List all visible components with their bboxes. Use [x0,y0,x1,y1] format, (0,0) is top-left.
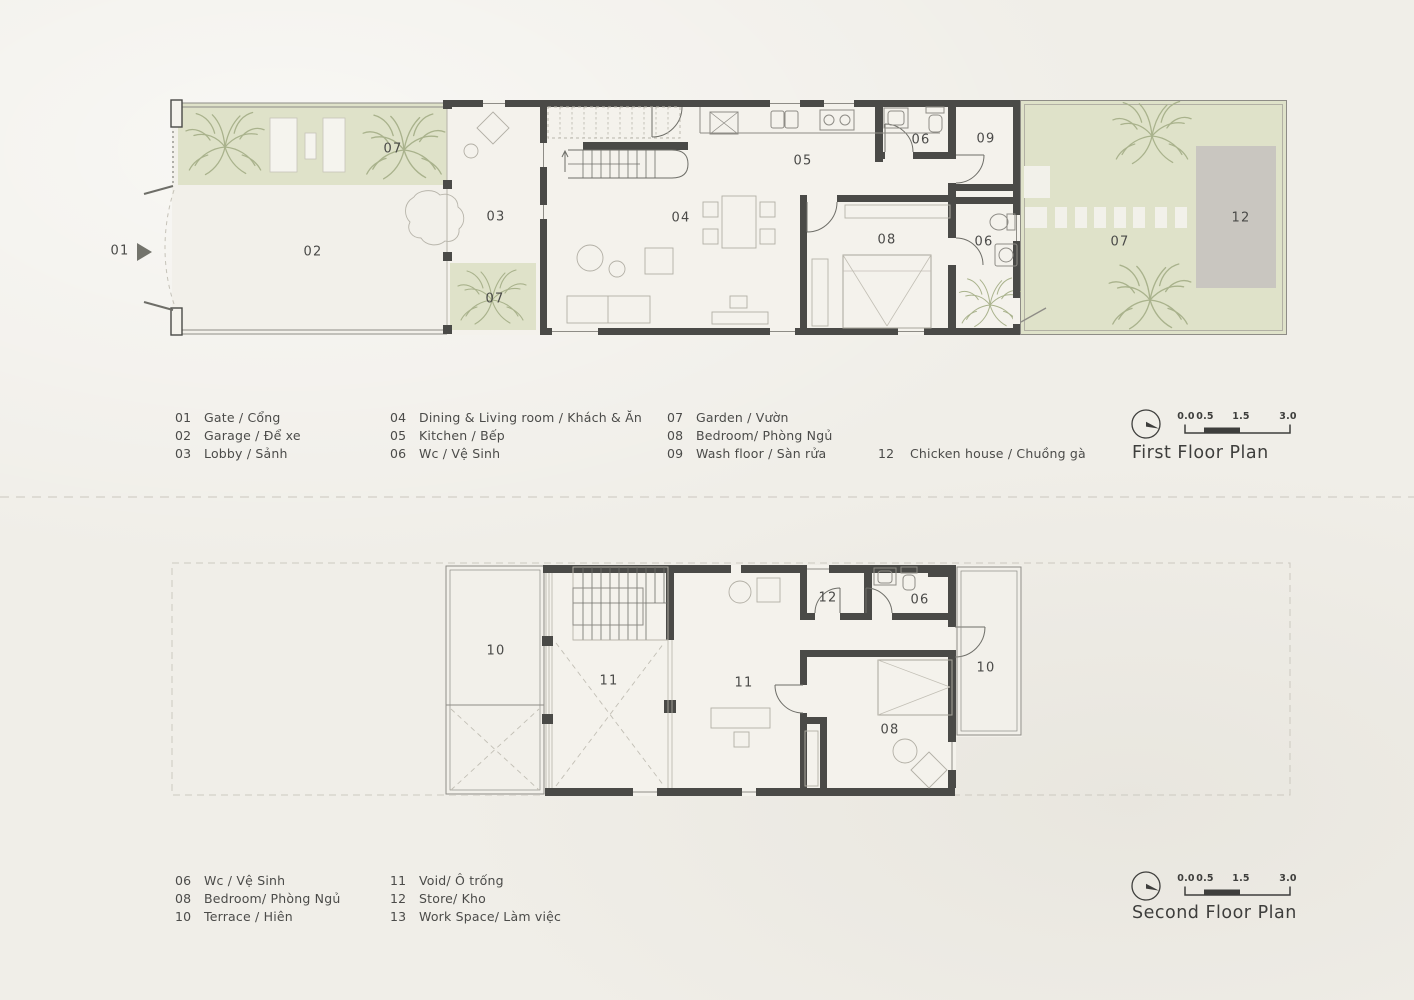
legend-item: 04Dining & Living room / Khách & Ăn [390,408,642,426]
plan-linework [0,0,1414,1000]
room-label-void-mid: 11 [735,676,754,691]
legend-item: 13Work Space/ Làm việc [390,907,561,925]
room-label-chicken-house: 12 [1232,211,1251,226]
room-label-garage: 02 [304,245,323,260]
ff-legend-col1: 01Gate / Cổng 02Garage / Để xe 03Lobby /… [175,408,301,462]
first-floor-linework [137,100,1287,335]
legend-item: 05Kitchen / Bếp [390,426,642,444]
room-label-garden-mid: 07 [486,292,505,307]
legend-item: 10Terrace / Hiên [175,907,340,925]
room-label-wc-sf: 06 [911,593,930,608]
entry-arrow [137,243,152,261]
legend-item: 07Garden / Vườn [667,408,832,426]
legend-item: 03Lobby / Sảnh [175,444,301,462]
ff-scale-tick: 1.5 [1232,411,1249,422]
room-label-wash-floor: 09 [977,132,996,147]
ff-scale-tick: 3.0 [1279,411,1296,422]
legend-item: 12Store/ Kho [390,889,561,907]
room-label-lobby: 03 [487,210,506,225]
sf-scale-tick: 3.0 [1279,873,1296,884]
room-label-garden-right: 07 [1111,235,1130,250]
room-label-dining-living: 04 [672,211,691,226]
ff-north-indicator [1132,410,1160,438]
drawing-sheet: 01 02 03 04 05 06 09 06 08 07 07 07 12 1… [0,0,1414,1000]
second-floor-linework [172,563,1290,796]
legend-item: 06Wc / Vệ Sinh [175,871,340,889]
room-label-bedroom-sf: 08 [881,723,900,738]
ff-scale-tick: 0.5 [1196,411,1213,422]
room-label-bedroom-ff: 08 [878,233,897,248]
room-label-void: 11 [600,674,619,689]
ff-legend-col3: 07Garden / Vườn 08Bedroom/ Phòng Ngủ 09W… [667,408,832,462]
second-floor-title: Second Floor Plan [1132,903,1297,923]
legend-item: 12Chicken house / Chuồng gà [878,444,1086,462]
legend-item: 06Wc / Vệ Sinh [390,444,642,462]
legend-item: 11Void/ Ô trống [390,871,561,889]
room-label-kitchen: 05 [794,154,813,169]
room-label-terrace-left: 10 [487,644,506,659]
room-label-wc-top: 06 [912,133,931,148]
room-label-terrace-right: 10 [977,661,996,676]
ff-scale-tick: 0.0 [1177,411,1194,422]
room-label-store: 12 [819,591,838,606]
legend-item: 08Bedroom/ Phòng Ngủ [175,889,340,907]
room-label-wc-side: 06 [975,235,994,250]
ff-scale-bar [1185,425,1290,434]
legend-item: 09Wash floor / Sàn rửa [667,444,832,462]
sf-scale-bar [1185,887,1290,896]
sf-scale-tick: 1.5 [1232,873,1249,884]
sf-scale-tick: 0.0 [1177,873,1194,884]
first-floor-title: First Floor Plan [1132,443,1269,463]
sf-north-indicator [1132,872,1160,900]
ff-legend-col4: 12Chicken house / Chuồng gà [878,444,1086,462]
room-label-garden-strip: 07 [384,142,403,157]
legend-item: 08Bedroom/ Phòng Ngủ [667,426,832,444]
sf-legend-col1: 06Wc / Vệ Sinh 08Bedroom/ Phòng Ngủ 10Te… [175,871,340,925]
sf-scale-tick: 0.5 [1196,873,1213,884]
legend-item: 02Garage / Để xe [175,426,301,444]
sf-legend-col2: 11Void/ Ô trống 12Store/ Kho 13Work Spac… [390,871,561,925]
legend-item: 01Gate / Cổng [175,408,301,426]
room-label-gate: 01 [111,244,130,259]
ff-legend-col2: 04Dining & Living room / Khách & Ăn 05Ki… [390,408,642,462]
